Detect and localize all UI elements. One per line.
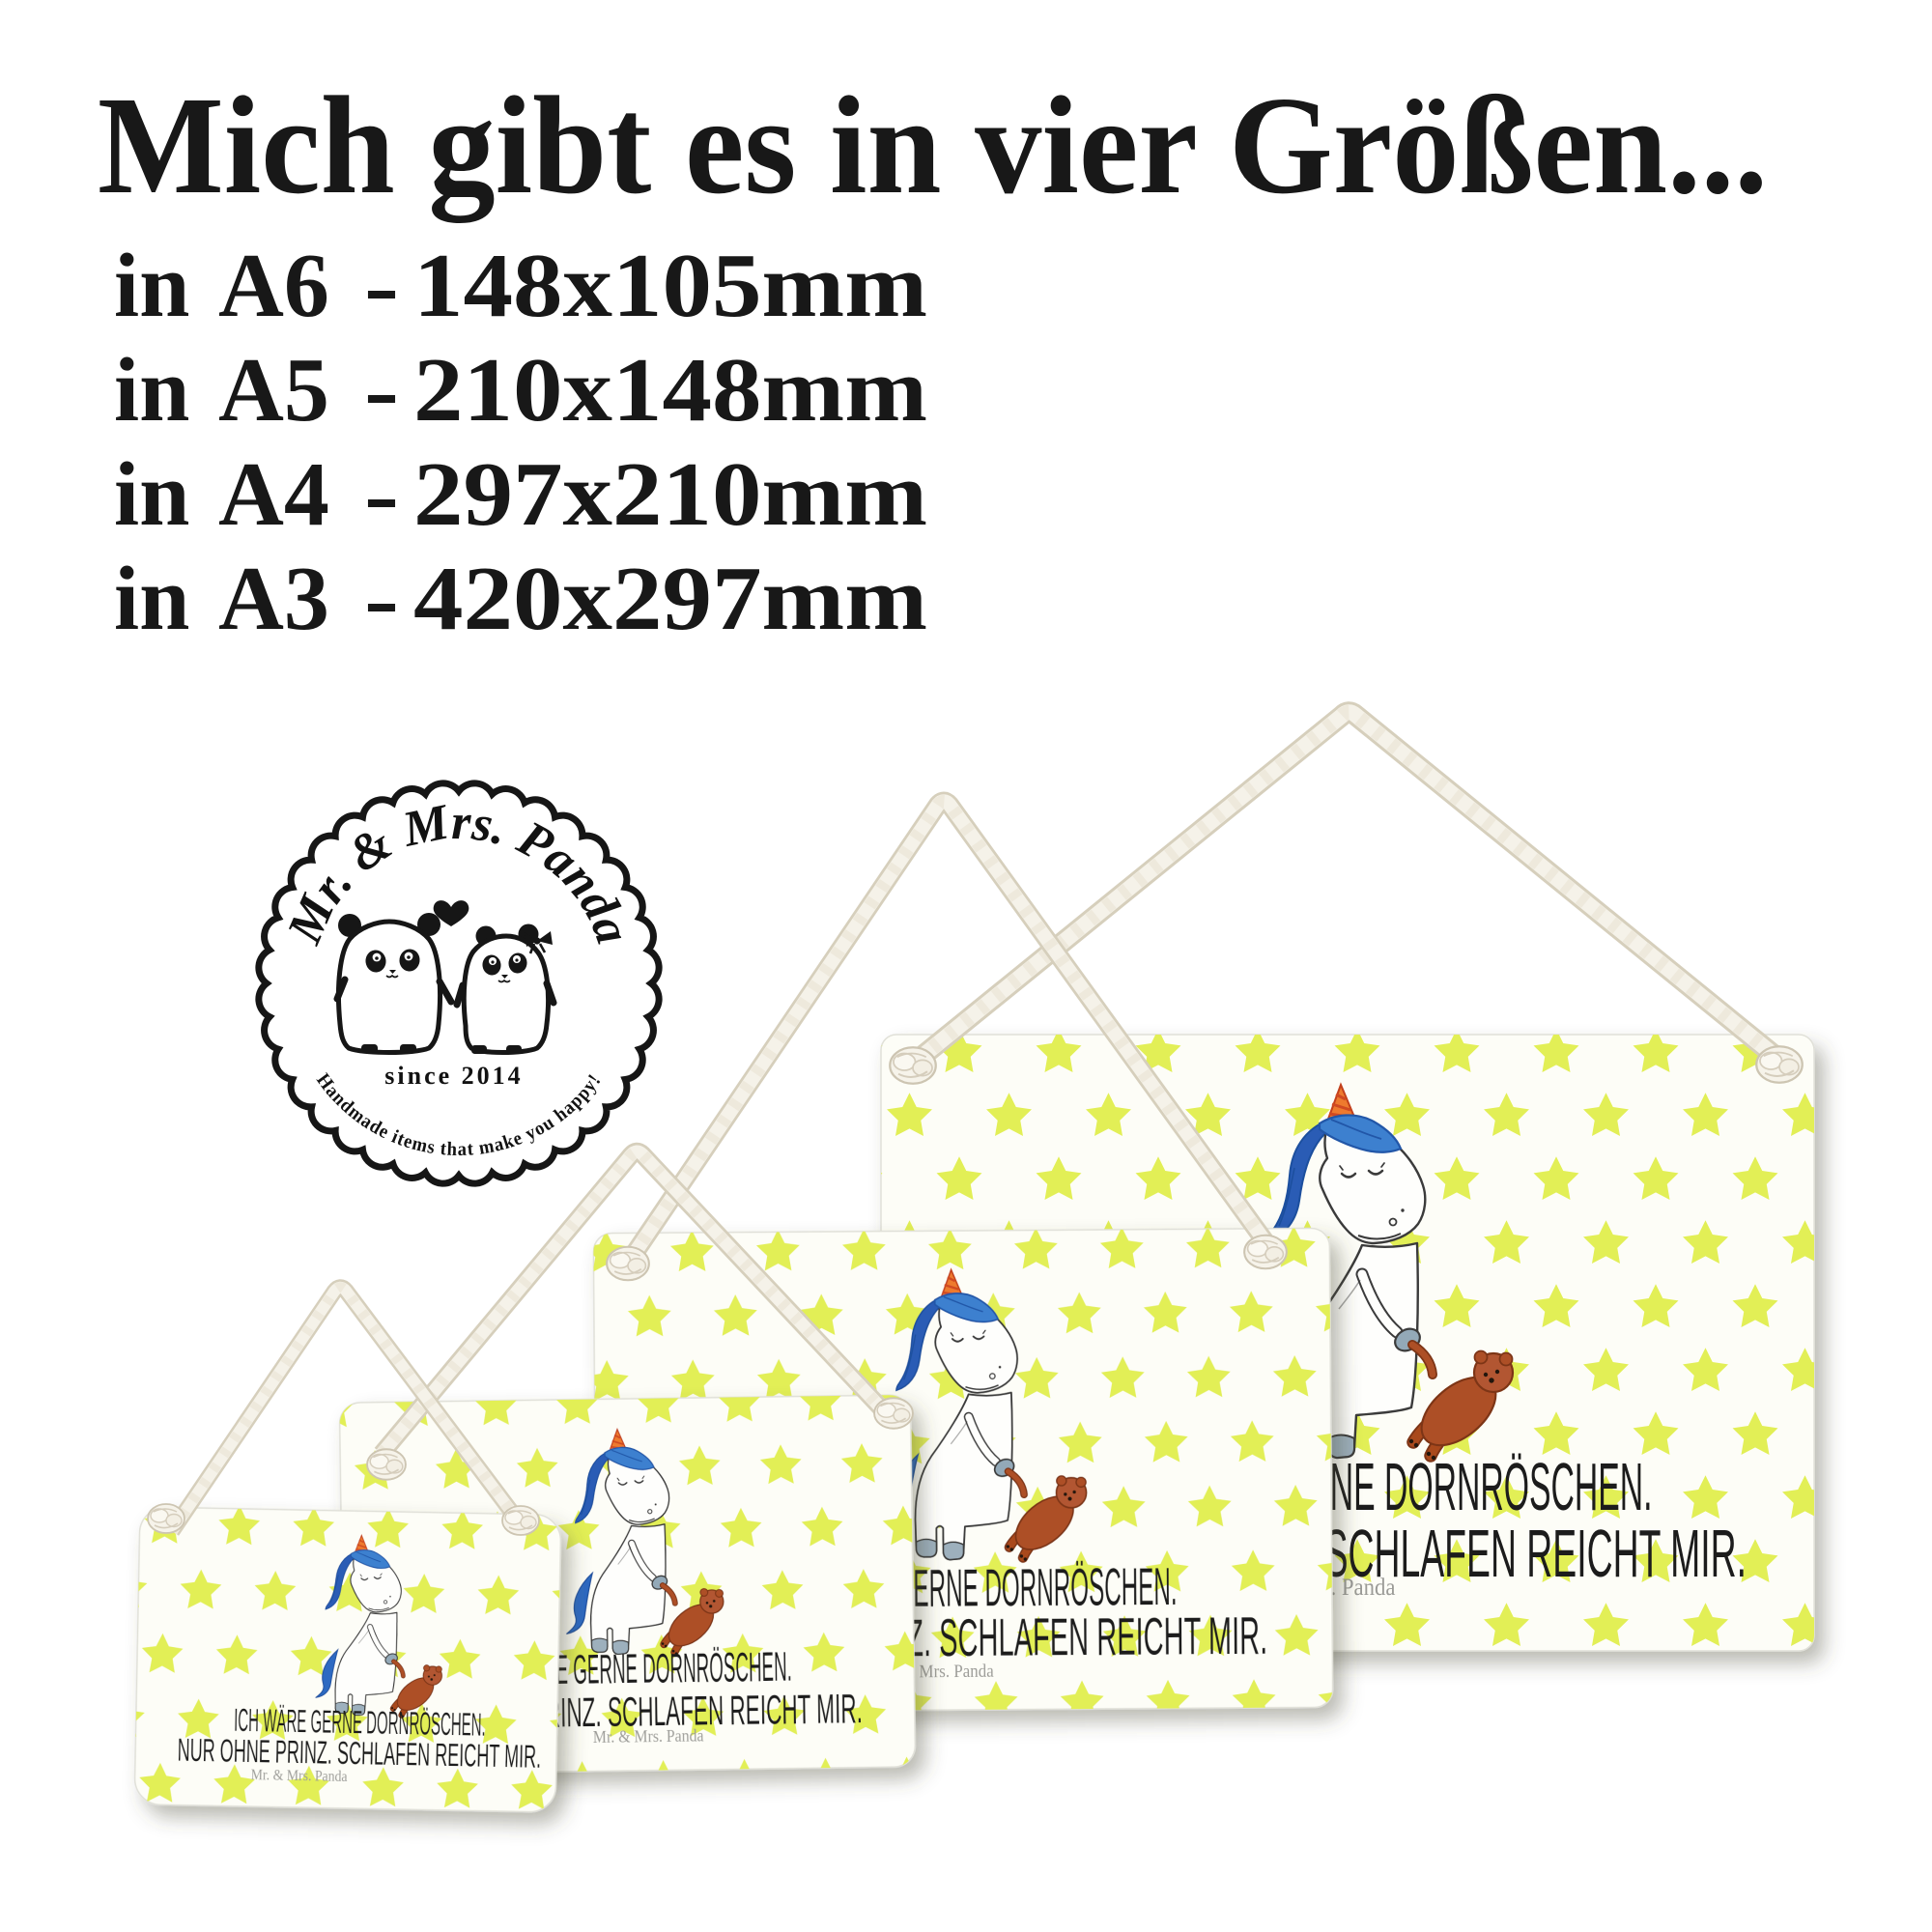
svg-text:Mich gibt es in vier Größen...: Mich gibt es in vier Größen... xyxy=(98,69,1768,223)
svg-text:inA3-420x297mm: inA3-420x297mm xyxy=(114,549,927,649)
svg-text:NUR OHNE PRINZ. SCHLAFEN REICH: NUR OHNE PRINZ. SCHLAFEN REICHT MIR. xyxy=(177,1732,541,1776)
svg-text:Mr. & Mrs. Panda: Mr. & Mrs. Panda xyxy=(250,1767,347,1785)
svg-text:inA4-297x210mm: inA4-297x210mm xyxy=(114,444,927,545)
svg-text:since 2014: since 2014 xyxy=(384,1062,523,1090)
svg-text:inA6-148x105mm: inA6-148x105mm xyxy=(114,236,927,336)
svg-text:inA5-210x148mm: inA5-210x148mm xyxy=(114,340,927,440)
svg-text:Mr. & Mrs. Panda: Mr. & Mrs. Panda xyxy=(593,1725,704,1747)
